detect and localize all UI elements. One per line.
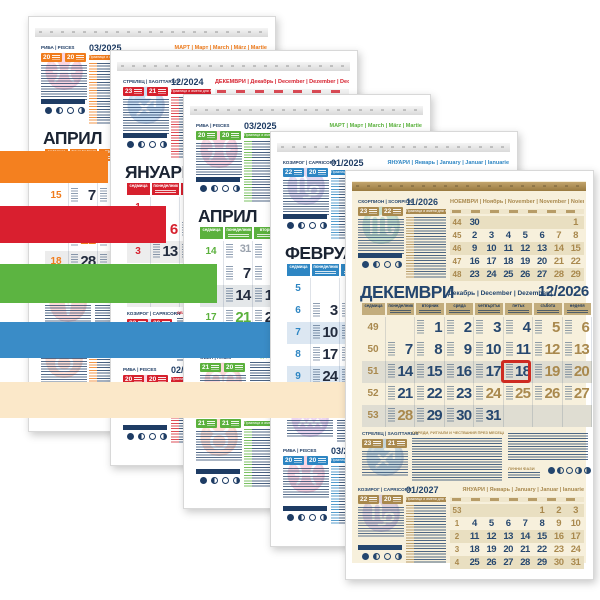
date-number: 9 bbox=[464, 342, 472, 357]
date-namedays-micro-text bbox=[313, 347, 320, 362]
mini-date-cell: 10 bbox=[567, 518, 584, 529]
mini-month-header: ЯНУАРИ | Январь | January | Januar | Ian… bbox=[450, 487, 584, 495]
mini-grid-row: 425262728293031 bbox=[450, 556, 584, 569]
main-week-number: 53 bbox=[362, 408, 384, 424]
day-header-micro bbox=[537, 310, 558, 314]
moon-phases-bar bbox=[196, 469, 240, 474]
zodiac-name-label: КОЗИРОГ | CAPRICORN bbox=[358, 487, 411, 492]
day-header-micro bbox=[508, 310, 529, 314]
badge-micro-text bbox=[231, 421, 239, 426]
zodiac-name-label: КОЗИРОГ | CAPRICORN bbox=[283, 160, 336, 165]
zodiac-date-badge: 21 bbox=[220, 419, 241, 428]
moon-phase-icon bbox=[149, 433, 156, 440]
date-namedays-micro-text bbox=[535, 320, 542, 335]
day-header-micro bbox=[478, 310, 499, 314]
zodiac-name-label: РИБА | PISCES bbox=[41, 45, 75, 50]
date-number: 24 bbox=[486, 386, 501, 401]
moon-phases-bar bbox=[41, 99, 85, 104]
sheet-paper: ♏СКОРПИОН | SCORPION232211/2026Празници … bbox=[352, 181, 586, 563]
date-number: 31 bbox=[486, 408, 501, 423]
badge-micro-text bbox=[76, 55, 84, 60]
mini-date-cell: 4 bbox=[500, 230, 517, 241]
main-date-cell: 22 bbox=[415, 383, 444, 405]
mini-day-header-micro bbox=[217, 90, 347, 93]
main-date-cell: 13 bbox=[563, 339, 592, 361]
date-number: 4 bbox=[523, 320, 531, 335]
day-header-cell: сряда bbox=[446, 303, 473, 315]
main-date-cell: 7 bbox=[224, 263, 253, 285]
day-header-week-label: седмица bbox=[127, 183, 150, 195]
mini-date-cell: 20 bbox=[500, 544, 517, 555]
zodiac-description-micro-text bbox=[283, 180, 329, 216]
day-header-cell: четвъртък bbox=[475, 303, 502, 315]
mini-date-cell: 14 bbox=[550, 243, 567, 254]
mini-date-cell: 26 bbox=[517, 269, 534, 280]
binding-strip bbox=[352, 182, 586, 191]
date-namedays-micro-text bbox=[535, 386, 542, 401]
moon-phase-icon bbox=[127, 433, 134, 440]
main-date-cell: 13 bbox=[151, 241, 180, 263]
moon-phase-icon bbox=[287, 222, 294, 229]
binding-strip-ticks bbox=[194, 109, 419, 111]
main-grid-row: 5221222324252627 bbox=[362, 383, 592, 405]
date-number: 8 bbox=[434, 342, 442, 357]
binding-strip-ticks bbox=[356, 185, 582, 187]
zodiac-description-micro-text bbox=[196, 143, 242, 179]
main-date-cell: 30 bbox=[445, 405, 474, 427]
mini-day-header-micro bbox=[452, 498, 582, 501]
binding-strip bbox=[277, 143, 510, 152]
moon-phase-icon bbox=[138, 433, 145, 440]
day-header-week-label: седмица bbox=[287, 264, 310, 276]
main-date-cell: 23 bbox=[445, 383, 474, 405]
date-number: 31 bbox=[240, 244, 251, 255]
moon-phase-icon bbox=[320, 222, 327, 229]
date-namedays-micro-text bbox=[255, 244, 262, 259]
main-date-cell: 26 bbox=[533, 383, 562, 405]
zodiac-block: ♓РИБА | PISCES2020 bbox=[41, 45, 89, 117]
color-band-red bbox=[0, 206, 166, 243]
list-date-column bbox=[331, 178, 339, 240]
badge-micro-text bbox=[235, 365, 243, 370]
date-number: 17 bbox=[486, 364, 501, 379]
date-namedays-micro-text bbox=[535, 364, 542, 379]
zodiac-description-micro-text bbox=[358, 507, 404, 537]
highlight-red-box bbox=[501, 360, 531, 383]
zodiac-block: ♉ТЕЛЕЦ | TAURUS2121 bbox=[196, 411, 244, 487]
date-number: 28 bbox=[397, 408, 412, 423]
list-date-column bbox=[406, 217, 414, 279]
main-week-number: 51 bbox=[362, 364, 384, 380]
badge-micro-text bbox=[318, 458, 326, 463]
date-number: 15 bbox=[427, 364, 442, 379]
day-header-micro bbox=[419, 310, 440, 314]
main-date-cell: 24 bbox=[474, 383, 503, 405]
main-date-cell: 31 bbox=[224, 241, 253, 263]
mini-day-header-micro bbox=[452, 210, 582, 213]
date-number: 6 bbox=[581, 320, 589, 335]
moon-phase-icon bbox=[127, 141, 134, 148]
zodiac-description-micro-text bbox=[123, 99, 169, 135]
date-namedays-micro-text bbox=[476, 364, 483, 379]
date-number: 23 bbox=[456, 386, 471, 401]
main-grid-row: 5114151617181920 bbox=[362, 361, 592, 383]
date-namedays-micro-text bbox=[447, 320, 454, 335]
badge-micro-text bbox=[397, 441, 405, 446]
day-header-micro bbox=[567, 310, 588, 314]
moon-phase-icon bbox=[384, 261, 391, 268]
mini-date-cell: 6 bbox=[500, 518, 517, 529]
badge-micro-text bbox=[373, 441, 381, 446]
info-right-micro-text bbox=[508, 433, 588, 461]
zodiac-date-badge: 21 bbox=[196, 419, 217, 428]
grid-column-separator bbox=[532, 317, 533, 427]
mini-date-cell: 16 bbox=[550, 531, 567, 542]
moon-phase-icon bbox=[233, 185, 240, 192]
main-date-cell: 20 bbox=[563, 361, 592, 383]
mini-grid-row: 469101112131415 bbox=[450, 242, 584, 255]
mini-month-caption: 11/2026 bbox=[406, 197, 448, 208]
mini-date-cell: 22 bbox=[567, 256, 584, 267]
mini-grid-row: 145678910 bbox=[450, 517, 584, 530]
main-date-cell: 14 bbox=[224, 285, 253, 307]
main-week-number: 8 bbox=[287, 347, 309, 363]
mini-date-cell: 10 bbox=[483, 243, 500, 254]
day-header-cell: понеделник bbox=[387, 303, 414, 315]
mini-date-cell: 28 bbox=[550, 269, 567, 280]
mini-date-cell: 2 bbox=[466, 230, 483, 241]
date-number: 17 bbox=[322, 347, 337, 362]
mini-date-cell: 16 bbox=[466, 256, 483, 267]
mini-date-cell: 15 bbox=[533, 531, 550, 542]
moon-phase-icon bbox=[548, 467, 555, 474]
zodiac-date-badge: 20 bbox=[65, 53, 86, 62]
main-week-number: 5 bbox=[287, 281, 309, 297]
date-namedays-micro-text bbox=[417, 386, 424, 401]
main-date-cell: 27 bbox=[563, 383, 592, 405]
moon-phase-icon bbox=[200, 185, 207, 192]
date-namedays-micro-text bbox=[506, 320, 513, 335]
mini-date-cell: 5 bbox=[517, 230, 534, 241]
main-week-number: 6 bbox=[287, 303, 309, 319]
mini-week-number: 48 bbox=[450, 270, 464, 280]
zodiac-block: ♓РИБА | PISCES2020 bbox=[283, 448, 331, 524]
mini-date-cell: 22 bbox=[533, 544, 550, 555]
moon-phase-icon bbox=[584, 467, 591, 474]
main-week-number: 15 bbox=[45, 188, 67, 204]
moon-phase-icon bbox=[362, 553, 369, 560]
main-date-cell: 31 bbox=[474, 405, 503, 427]
date-namedays-micro-text bbox=[565, 342, 572, 357]
main-date-cell: 17 bbox=[311, 344, 340, 366]
zodiac-description-micro-text bbox=[283, 468, 329, 498]
mini-week-number: 47 bbox=[450, 257, 464, 267]
main-date-cell: 1 bbox=[415, 317, 444, 339]
date-number: 25 bbox=[515, 386, 530, 401]
mini-grid-row: 211121314151617 bbox=[450, 530, 584, 543]
mini-date-cell: 18 bbox=[466, 544, 483, 555]
moon-phase-icon bbox=[373, 553, 380, 560]
mini-month-caption: 01/2027 bbox=[406, 485, 448, 496]
mini-date-cell: 19 bbox=[517, 256, 534, 267]
mini-grid-row: 452345678 bbox=[450, 229, 584, 242]
badge-micro-text bbox=[231, 133, 239, 138]
mini-date-cell: 7 bbox=[550, 230, 567, 241]
main-date-cell: 2 bbox=[445, 317, 474, 339]
date-namedays-micro-text bbox=[100, 188, 107, 203]
date-namedays-micro-text bbox=[388, 386, 395, 401]
mini-date-cell: 25 bbox=[466, 557, 483, 568]
moon-phase-icon bbox=[160, 433, 167, 440]
mini-week-number: 1 bbox=[450, 519, 464, 529]
mini-date-cell: 15 bbox=[567, 243, 584, 254]
day-header-cell: петък bbox=[505, 303, 532, 315]
mini-date-cell: 27 bbox=[533, 269, 550, 280]
mini-week-number: 53 bbox=[450, 506, 464, 516]
main-date-cell: 25 bbox=[504, 383, 533, 405]
zodiac-date-badge: 21 bbox=[386, 439, 407, 448]
mini-date-cell: 13 bbox=[533, 243, 550, 254]
moon-phase-icon bbox=[298, 514, 305, 521]
moon-phase-icon bbox=[362, 261, 369, 268]
date-number: 13 bbox=[162, 244, 177, 259]
zodiac-description-micro-text bbox=[362, 451, 408, 477]
main-date-cell: 6 bbox=[563, 317, 592, 339]
zodiac-date-badge: 23 bbox=[123, 87, 144, 96]
date-namedays-micro-text bbox=[565, 386, 572, 401]
list-date-column bbox=[244, 429, 252, 487]
main-date-cell: 14 bbox=[386, 361, 415, 383]
mini-month-header: МАРТ | Март | March | März | Martie bbox=[288, 123, 422, 131]
date-namedays-micro-text bbox=[565, 364, 572, 379]
grid-column-separator bbox=[444, 317, 445, 427]
zodiac-block: ♑КОЗИРОГ | CAPRICORN2220 bbox=[358, 487, 406, 563]
mini-date-cell: 1 bbox=[533, 505, 550, 516]
day-header-cell: събота bbox=[534, 303, 561, 315]
moon-phases-caption: ЛУННИ ФАЗИ bbox=[508, 466, 542, 471]
grid-column-separator bbox=[339, 278, 340, 388]
zodiac-date-badge: 22 bbox=[358, 495, 379, 504]
binding-strip-ticks bbox=[121, 65, 346, 67]
date-number: 2 bbox=[464, 320, 472, 335]
date-namedays-micro-text bbox=[417, 408, 424, 423]
date-namedays-micro-text bbox=[226, 244, 233, 259]
date-namedays-micro-text bbox=[506, 342, 513, 357]
moon-phase-icon bbox=[287, 514, 294, 521]
zodiac-date-badge: 20 bbox=[382, 495, 403, 504]
zodiac-block: ♏СКОРПИОН | SCORPION2322 bbox=[358, 199, 406, 271]
grid-column-separator bbox=[591, 317, 592, 427]
grid-column-separator bbox=[414, 317, 415, 427]
badge-micro-text bbox=[207, 133, 215, 138]
mini-date-cell: 23 bbox=[466, 269, 483, 280]
grid-column-separator bbox=[310, 278, 311, 388]
date-namedays-micro-text bbox=[226, 288, 233, 303]
zodiac-name-label: РИБА | PISCES bbox=[123, 367, 157, 372]
date-number: 11 bbox=[516, 342, 530, 357]
mini-week-number: 44 bbox=[450, 218, 464, 228]
date-namedays-micro-text bbox=[153, 244, 160, 259]
zodiac-name-label: СТРЕЛЕЦ | SAGITTARIUS bbox=[362, 431, 418, 436]
main-week-number: 7 bbox=[287, 325, 309, 341]
moon-phase-icon bbox=[373, 261, 380, 268]
zodiac-date-badge: 21 bbox=[147, 87, 168, 96]
moon-phases-bar bbox=[196, 177, 240, 182]
date-namedays-micro-text bbox=[313, 325, 320, 340]
mini-month-caption: 01/2025 bbox=[331, 158, 373, 169]
moon-phase-icon bbox=[566, 467, 573, 474]
moon-phase-icon bbox=[298, 222, 305, 229]
date-number: 5 bbox=[552, 320, 560, 335]
main-date-cell: 12 bbox=[533, 339, 562, 361]
mini-day-header-row bbox=[450, 209, 584, 214]
grid-column-separator bbox=[473, 317, 474, 427]
mini-grid-row: 4823242526272829 bbox=[450, 268, 584, 281]
mini-week-number: 3 bbox=[450, 545, 464, 555]
day-header-micro bbox=[155, 190, 176, 194]
date-number: 1 bbox=[434, 320, 442, 335]
date-namedays-micro-text bbox=[447, 342, 454, 357]
date-number: 12 bbox=[544, 342, 559, 357]
mini-date-cell: 27 bbox=[500, 557, 517, 568]
badge-micro-text bbox=[369, 209, 377, 214]
moon-phase-icon bbox=[149, 141, 156, 148]
moon-phase-icon bbox=[222, 185, 229, 192]
moon-phase-icon bbox=[309, 514, 316, 521]
main-week-number: 50 bbox=[362, 342, 384, 358]
date-number: 14 bbox=[235, 288, 250, 303]
calendar-mockup-stage: ♓РИБА | PISCES202003/2025Празници и имен… bbox=[0, 0, 600, 600]
mini-date-cell: 28 bbox=[517, 557, 534, 568]
name-days-list-micro-text bbox=[406, 505, 446, 563]
date-number: 16 bbox=[456, 364, 471, 379]
date-number: 10 bbox=[486, 342, 501, 357]
color-band-blue bbox=[0, 322, 270, 358]
zodiac-block: ♑КОЗИРОГ | CAPRICORN2220 bbox=[283, 160, 331, 232]
date-namedays-micro-text bbox=[476, 386, 483, 401]
badge-micro-text bbox=[393, 497, 401, 502]
binding-strip bbox=[35, 28, 268, 37]
mini-grid-row: 53123 bbox=[450, 504, 584, 517]
moon-phase-icon bbox=[395, 553, 402, 560]
date-number: 20 bbox=[574, 364, 589, 379]
zodiac-date-badge: 20 bbox=[196, 131, 217, 140]
zodiac-name-label: РИБА | PISCES bbox=[283, 448, 317, 453]
day-header-cell: неделя bbox=[564, 303, 591, 315]
main-date-cell: 10 bbox=[474, 339, 503, 361]
day-header-cell: понеделник bbox=[225, 227, 252, 239]
main-date-cell: 19 bbox=[533, 361, 562, 383]
date-namedays-micro-text bbox=[476, 320, 483, 335]
date-number: 7 bbox=[88, 188, 96, 203]
list-date-column bbox=[331, 466, 339, 524]
color-band-green bbox=[0, 264, 217, 303]
day-header-micro bbox=[449, 310, 470, 314]
main-week-number: 3 bbox=[127, 244, 149, 260]
date-number: 29 bbox=[427, 408, 442, 423]
main-date-cell: 5 bbox=[533, 317, 562, 339]
mini-date-cell: 4 bbox=[466, 518, 483, 529]
main-year-caption: 12/2026 bbox=[538, 283, 586, 301]
date-namedays-micro-text bbox=[313, 303, 320, 318]
date-number: 26 bbox=[544, 386, 559, 401]
main-week-number: 52 bbox=[362, 386, 384, 402]
mini-week-number: 2 bbox=[450, 532, 464, 542]
mini-date-cell: 26 bbox=[483, 557, 500, 568]
date-namedays-micro-text bbox=[447, 364, 454, 379]
date-namedays-micro-text bbox=[476, 342, 483, 357]
moon-phases-bar bbox=[283, 506, 327, 511]
zodiac-name-label: СКОРПИОН | SCORPION bbox=[358, 199, 413, 204]
mini-date-cell: 24 bbox=[567, 544, 584, 555]
date-number: 14 bbox=[397, 364, 412, 379]
mini-week-number: 4 bbox=[450, 558, 464, 568]
zodiac-date-badge: 20 bbox=[220, 131, 241, 140]
mini-date-cell: 23 bbox=[550, 544, 567, 555]
main-date-cell: 7 bbox=[69, 185, 98, 207]
moon-phases-bar bbox=[283, 214, 327, 219]
mini-date-cell: 20 bbox=[533, 256, 550, 267]
rituals-micro-text bbox=[412, 438, 502, 482]
zodiac-date-badge: 20 bbox=[307, 168, 328, 177]
moon-phase-icon bbox=[211, 185, 218, 192]
mini-date-cell: 24 bbox=[483, 269, 500, 280]
moon-phases-bar bbox=[358, 253, 402, 258]
zodiac-date-badge: 23 bbox=[358, 207, 379, 216]
date-number: 6 bbox=[170, 222, 178, 237]
list-date-column bbox=[244, 141, 252, 203]
grid-column-separator bbox=[385, 317, 386, 427]
moon-phase-icon bbox=[222, 477, 229, 484]
calendar-sheet-december-2026-tan: ♏СКОРПИОН | SCORPION232211/2026Празници … bbox=[345, 170, 594, 580]
main-week-number: 14 bbox=[200, 244, 222, 260]
mini-month-caption: 12/2024 bbox=[171, 77, 213, 88]
mini-date-cell: 21 bbox=[517, 544, 534, 555]
mini-date-cell: 31 bbox=[567, 557, 584, 568]
zodiac-name-label: КОЗИРОГ | CAPRICORN bbox=[127, 311, 180, 316]
badge-micro-text bbox=[294, 170, 302, 175]
mini-date-cell: 21 bbox=[550, 256, 567, 267]
mini-date-cell: 7 bbox=[517, 518, 534, 529]
mini-month-header: НОЕМВРИ | Ноябрь | November | November |… bbox=[450, 199, 584, 207]
main-date-cell: 3 bbox=[311, 300, 340, 322]
date-namedays-micro-text bbox=[255, 266, 262, 281]
zodiac-name-label: РИБА | PISCES bbox=[196, 123, 230, 128]
name-days-list-header: Празници и имени дни през месеца bbox=[406, 497, 446, 502]
date-number: 21 bbox=[397, 386, 412, 401]
zodiac-date-badge: 21 bbox=[200, 363, 221, 372]
day-header-cell: вторник bbox=[416, 303, 443, 315]
zodiac-date-badge: 22 bbox=[382, 207, 403, 216]
moon-phase-icon bbox=[320, 514, 327, 521]
date-namedays-micro-text bbox=[417, 342, 424, 357]
mini-date-cell: 18 bbox=[500, 256, 517, 267]
badge-micro-text bbox=[211, 365, 219, 370]
moon-phase-icon bbox=[575, 467, 582, 474]
moon-phase-icon bbox=[56, 107, 63, 114]
day-header-micro bbox=[228, 234, 249, 238]
rituals-caption: ОБРЕДИ, РИТУАЛИ И ЧЕСТВАНИЯ ПРЕЗ МЕСЕЦА bbox=[412, 431, 504, 436]
mini-date-cell: 12 bbox=[483, 531, 500, 542]
binding-strip-ticks bbox=[281, 146, 506, 148]
moon-phase-icon bbox=[211, 477, 218, 484]
main-date-cell: 7 bbox=[386, 339, 415, 361]
mini-date-cell: 9 bbox=[466, 243, 483, 254]
zodiac-description-micro-text bbox=[196, 431, 242, 461]
date-namedays-micro-text bbox=[71, 188, 78, 203]
main-date-cell: 21 bbox=[386, 383, 415, 405]
date-number: 30 bbox=[456, 408, 471, 423]
